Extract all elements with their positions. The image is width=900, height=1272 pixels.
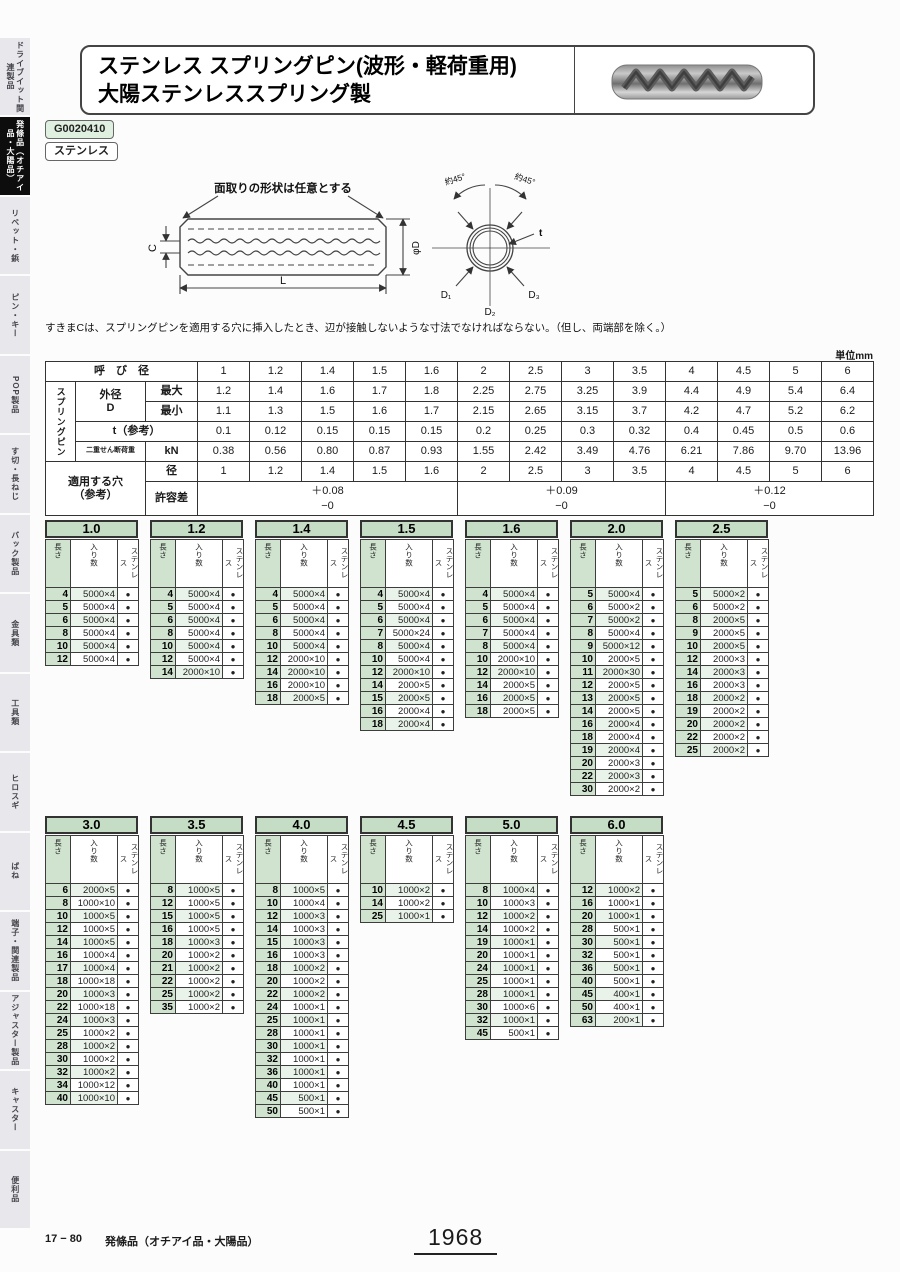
- length-cell: 4: [466, 588, 491, 601]
- stock-dot: ●: [118, 1079, 139, 1092]
- size-table-title: 1.4: [255, 520, 348, 538]
- stock-dot: ●: [328, 588, 349, 601]
- size-tables-row1: 1.0長さ入り数ステンレス45000×4●55000×4●65000×4●850…: [45, 520, 768, 796]
- quantity-cell: 1000×3: [176, 936, 223, 949]
- length-cell: 22: [571, 770, 596, 783]
- length-cell: 28: [466, 988, 491, 1001]
- quantity-cell: 1000×5: [281, 884, 328, 897]
- length-cell: 18: [361, 718, 386, 731]
- stock-dot: ●: [118, 1092, 139, 1105]
- sidebar-item[interactable]: 発條品（オチアイ品・大陽品）: [0, 117, 30, 194]
- size-column-header-label: ステンレス: [538, 543, 560, 582]
- stock-dot: ●: [643, 949, 664, 962]
- sidebar-item-label: アジャスター製品: [10, 994, 20, 1066]
- sidebar-item[interactable]: 端子・関連製品: [0, 912, 30, 989]
- stock-dot: ●: [538, 975, 559, 988]
- size-table-grid: 長さ入り数ステンレス45000×4●55000×4●65000×4●75000×…: [360, 539, 454, 731]
- spec-label-nominal: 呼 び 径: [46, 362, 198, 382]
- size-column-header-label: 長さ: [158, 839, 169, 855]
- spec-value-cell: 4.9: [718, 382, 770, 402]
- quantity-cell: 2000×5: [596, 692, 643, 705]
- quantity-cell: 2000×4: [386, 718, 433, 731]
- quantity-cell: 5000×4: [71, 653, 118, 666]
- size-row: 102000×5●: [571, 653, 664, 666]
- spec-value-cell: 1.1: [198, 402, 250, 422]
- size-column-header-label: ステンレス: [328, 543, 350, 582]
- stock-dot: ●: [643, 975, 664, 988]
- size-row: 102000×5●: [676, 640, 769, 653]
- sidebar-item-label: 金具類: [10, 620, 20, 647]
- length-cell: 36: [571, 962, 596, 975]
- size-column-header: 入り数: [491, 540, 538, 588]
- size-row: 241000×1●: [256, 1001, 349, 1014]
- size-row: 55000×4●: [466, 601, 559, 614]
- size-row: 142000×10●: [256, 666, 349, 679]
- stock-dot: ●: [328, 692, 349, 705]
- size-column-header-label: 長さ: [368, 543, 379, 559]
- stock-dot: ●: [433, 614, 454, 627]
- size-table-title: 2.0: [570, 520, 663, 538]
- size-column-header-label: ステンレス: [433, 543, 455, 582]
- size-row: 162000×4●: [571, 718, 664, 731]
- length-cell: 28: [571, 923, 596, 936]
- stock-dot: ●: [748, 705, 769, 718]
- size-row: 121000×2●: [466, 910, 559, 923]
- length-cell: 10: [151, 640, 176, 653]
- length-cell: 16: [571, 718, 596, 731]
- size-row: 45000×4●: [46, 588, 139, 601]
- length-cell: 20: [256, 975, 281, 988]
- spec-value-cell: 4.5: [718, 462, 770, 482]
- stock-dot: ●: [223, 666, 244, 679]
- size-table-5.0: 5.0長さ入り数ステンレス81000×4●101000×3●121000×2●1…: [465, 816, 558, 1040]
- length-cell: 8: [676, 614, 701, 627]
- page-title-line1: ステンレス スプリングピン(波形・軽荷重用): [98, 53, 517, 81]
- size-row: 161000×5●: [151, 923, 244, 936]
- stock-dot: ●: [538, 949, 559, 962]
- length-cell: 12: [151, 653, 176, 666]
- spec-value-cell: 0.2: [458, 422, 510, 442]
- stock-dot: ●: [643, 757, 664, 770]
- size-table-1.4: 1.4長さ入り数ステンレス45000×4●55000×4●65000×4●850…: [255, 520, 348, 705]
- size-column-header-label: 入り数: [299, 839, 310, 863]
- quantity-cell: 2000×4: [596, 744, 643, 757]
- quantity-cell: 1000×1: [491, 949, 538, 962]
- length-cell: 5: [571, 588, 596, 601]
- size-row: 32500×1●: [571, 949, 664, 962]
- length-cell: 4: [361, 588, 386, 601]
- length-cell: 19: [676, 705, 701, 718]
- size-row: 65000×4●: [46, 614, 139, 627]
- stock-dot: ●: [643, 923, 664, 936]
- size-row: 101000×3●: [466, 897, 559, 910]
- stock-dot: ●: [328, 1105, 349, 1118]
- size-table-title: 1.6: [465, 520, 558, 538]
- size-row: 182000×4●: [571, 731, 664, 744]
- size-column-header: 長さ: [466, 836, 491, 884]
- quantity-cell: 2000×5: [491, 692, 538, 705]
- spec-value-cell: 3.7: [614, 402, 666, 422]
- stock-dot: ●: [433, 640, 454, 653]
- size-row: 141000×5●: [46, 936, 139, 949]
- sidebar-item-label: ヒロスギ: [10, 774, 20, 810]
- spec-value-cell: 2.42: [510, 442, 562, 462]
- footer-page-ref: 17 − 80: [45, 1233, 82, 1245]
- size-row: 81000×4●: [466, 884, 559, 897]
- size-row: 202000×3●: [571, 757, 664, 770]
- sidebar-item-label: POP製品: [10, 376, 20, 414]
- length-cell: 8: [151, 884, 176, 897]
- spec-label-t: t（参考）: [76, 422, 198, 442]
- stock-dot: ●: [223, 923, 244, 936]
- size-row: 55000×4●: [151, 601, 244, 614]
- size-column-header: 長さ: [151, 836, 176, 884]
- spec-row-od-max: スプリングピン 外径 D 最大 1.21.41.61.71.82.252.753…: [46, 382, 874, 402]
- spec-value-cell: 2.65: [510, 402, 562, 422]
- stock-dot: ●: [328, 1027, 349, 1040]
- spec-label-od: 外径 D: [76, 382, 146, 422]
- stock-dot: ●: [433, 627, 454, 640]
- spec-label-group: スプリングピン: [46, 382, 76, 462]
- quantity-cell: 2000×5: [596, 653, 643, 666]
- length-cell: 5: [466, 601, 491, 614]
- length-cell: 12: [466, 666, 491, 679]
- stock-dot: ●: [748, 653, 769, 666]
- size-row: 142000×5●: [466, 679, 559, 692]
- length-cell: 13: [571, 692, 596, 705]
- quantity-cell: 5000×4: [491, 640, 538, 653]
- spec-value-cell: 1.55: [458, 442, 510, 462]
- spec-value-cell: 2: [458, 462, 510, 482]
- stock-dot: ●: [223, 975, 244, 988]
- size-row: 142000×5●: [361, 679, 454, 692]
- stock-dot: ●: [223, 627, 244, 640]
- quantity-cell: 5000×4: [176, 653, 223, 666]
- length-cell: 11: [571, 666, 596, 679]
- size-column-header-label: 入り数: [299, 543, 310, 567]
- quantity-cell: 500×1: [491, 1027, 538, 1040]
- stock-dot: ●: [643, 988, 664, 1001]
- size-row: 102000×10●: [466, 653, 559, 666]
- page-title: ステンレス スプリングピン(波形・軽荷重用) 大陽ステンレススプリング製: [98, 53, 517, 110]
- quantity-cell: 1000×2: [491, 923, 538, 936]
- spec-label-shear: 二重せん断荷重: [76, 442, 146, 462]
- size-table-grid: 長さ入り数ステンレス45000×4●55000×4●65000×4●75000×…: [465, 539, 559, 718]
- size-row: 251000×1●: [256, 1014, 349, 1027]
- length-cell: 16: [256, 949, 281, 962]
- spec-value-cell: 4: [666, 362, 718, 382]
- sidebar-item[interactable]: キャスター: [0, 1071, 30, 1148]
- spec-value-cell: 1.5: [302, 402, 354, 422]
- size-row: 162000×4●: [361, 705, 454, 718]
- length-cell: 30: [46, 1053, 71, 1066]
- spec-value-cell: 2.5: [510, 462, 562, 482]
- quantity-cell: 500×1: [281, 1092, 328, 1105]
- quantity-cell: 1000×1: [491, 936, 538, 949]
- length-cell: 8: [361, 640, 386, 653]
- size-row: 301000×2●: [46, 1053, 139, 1066]
- quantity-cell: 1000×5: [71, 936, 118, 949]
- length-cell: 10: [466, 897, 491, 910]
- sidebar-item[interactable]: ピン・キー: [0, 276, 30, 353]
- stock-dot: ●: [328, 1079, 349, 1092]
- quantity-cell: 1000×2: [176, 975, 223, 988]
- length-cell: 4: [46, 588, 71, 601]
- length-cell: 14: [256, 923, 281, 936]
- quantity-cell: 2000×5: [596, 679, 643, 692]
- quantity-cell: 2000×4: [386, 705, 433, 718]
- sidebar-item-label: ばね: [10, 862, 20, 880]
- stock-dot: ●: [328, 666, 349, 679]
- spec-value-cell: 5: [770, 362, 822, 382]
- sidebar-item[interactable]: 金具類: [0, 594, 30, 671]
- stock-dot: ●: [223, 614, 244, 627]
- dim-d3-label: D₃: [528, 290, 539, 301]
- stock-dot: ●: [433, 897, 454, 910]
- size-table-1.0: 1.0長さ入り数ステンレス45000×4●55000×4●65000×4●850…: [45, 520, 138, 666]
- length-cell: 14: [46, 936, 71, 949]
- quantity-cell: 2000×10: [281, 653, 328, 666]
- stock-dot: ●: [223, 910, 244, 923]
- size-row: 65000×4●: [361, 614, 454, 627]
- quantity-cell: 1000×1: [491, 1014, 538, 1027]
- size-column-header-label: 入り数: [509, 839, 520, 863]
- stock-dot: ●: [643, 744, 664, 757]
- stock-dot: ●: [328, 1092, 349, 1105]
- length-cell: 20: [46, 988, 71, 1001]
- quantity-cell: 1000×2: [71, 1027, 118, 1040]
- size-row: 101000×4●: [256, 897, 349, 910]
- size-column-header-label: 長さ: [578, 839, 589, 855]
- quantity-cell: 2000×10: [491, 653, 538, 666]
- spec-row-t: t（参考） 0.10.120.150.150.150.20.250.30.320…: [46, 422, 874, 442]
- quantity-cell: 5000×4: [176, 614, 223, 627]
- size-column-header: 長さ: [571, 836, 596, 884]
- size-column-header: 長さ: [46, 540, 71, 588]
- sidebar-item[interactable]: 便利品: [0, 1151, 30, 1228]
- size-row: 45000×4●: [466, 588, 559, 601]
- length-cell: 45: [256, 1092, 281, 1105]
- size-row: 281000×2●: [46, 1040, 139, 1053]
- size-table-title: 4.0: [255, 816, 348, 834]
- stock-dot: ●: [223, 1001, 244, 1014]
- size-column-header-label: 長さ: [473, 543, 484, 559]
- size-row: 221000×18●: [46, 1001, 139, 1014]
- spec-row-shear: 二重せん断荷重 kN 0.380.560.800.870.931.552.423…: [46, 442, 874, 462]
- stock-dot: ●: [748, 588, 769, 601]
- quantity-cell: 2000×5: [701, 640, 748, 653]
- stock-dot: ●: [433, 692, 454, 705]
- catalog-page: ドライブイット関連製品発條品（オチアイ品・大陽品）リベット・鋲ピン・キーPOP製…: [0, 0, 900, 1272]
- sidebar-item-label: ピン・キー: [10, 293, 20, 338]
- stock-dot: ●: [538, 588, 559, 601]
- stock-dot: ●: [643, 936, 664, 949]
- spec-row-od-min: 最小 1.11.31.51.61.72.152.653.153.74.24.75…: [46, 402, 874, 422]
- spec-value-cell: 3.9: [614, 382, 666, 402]
- size-row: 121000×2●: [571, 884, 664, 897]
- size-row: 45500×1●: [466, 1027, 559, 1040]
- stock-dot: ●: [118, 962, 139, 975]
- quantity-cell: 500×1: [596, 962, 643, 975]
- size-row: 221000×2●: [151, 975, 244, 988]
- length-cell: 10: [46, 910, 71, 923]
- spec-value-cell: 5.4: [770, 382, 822, 402]
- quantity-cell: 1000×1: [281, 1079, 328, 1092]
- stock-dot: ●: [538, 614, 559, 627]
- size-row: 92000×5●: [676, 627, 769, 640]
- spec-value-cell: 1.4: [302, 362, 354, 382]
- quantity-cell: 2000×2: [596, 783, 643, 796]
- sidebar-item[interactable]: POP製品: [0, 356, 30, 433]
- stock-dot: ●: [223, 988, 244, 1001]
- size-row: 321000×1●: [256, 1053, 349, 1066]
- spec-value-cell: 5.2: [770, 402, 822, 422]
- size-table-1.6: 1.6長さ入り数ステンレス45000×4●55000×4●65000×4●750…: [465, 520, 558, 718]
- quantity-cell: 1000×1: [491, 988, 538, 1001]
- spec-value-cell: 0.87: [354, 442, 406, 462]
- quantity-cell: 500×1: [281, 1105, 328, 1118]
- stock-dot: ●: [118, 897, 139, 910]
- length-cell: 12: [571, 679, 596, 692]
- size-row: 181000×3●: [151, 936, 244, 949]
- stock-dot: ●: [118, 1014, 139, 1027]
- length-cell: 25: [676, 744, 701, 757]
- size-row: 182000×2●: [676, 692, 769, 705]
- stock-dot: ●: [643, 653, 664, 666]
- size-row: 85000×4●: [571, 627, 664, 640]
- quantity-cell: 1000×4: [281, 897, 328, 910]
- spec-value-cell: 0.1: [198, 422, 250, 442]
- quantity-cell: 5000×4: [71, 640, 118, 653]
- spec-value-cell: 1.6: [354, 402, 406, 422]
- size-column-header-label: ステンレス: [118, 543, 140, 582]
- stock-dot: ●: [643, 1014, 664, 1027]
- length-cell: 8: [256, 884, 281, 897]
- stock-dot: ●: [328, 988, 349, 1001]
- spec-value-cell: 0.12: [250, 422, 302, 442]
- quantity-cell: 2000×2: [701, 692, 748, 705]
- size-row: 125000×4●: [46, 653, 139, 666]
- size-column-header: 入り数: [281, 836, 328, 884]
- quantity-cell: 2000×10: [176, 666, 223, 679]
- size-row: 222000×2●: [676, 731, 769, 744]
- quantity-cell: 5000×4: [71, 601, 118, 614]
- spec-value-cell: 1: [198, 462, 250, 482]
- sidebar-item[interactable]: アジャスター製品: [0, 992, 30, 1069]
- size-row: 141000×3●: [256, 923, 349, 936]
- stock-dot: ●: [433, 653, 454, 666]
- stock-dot: ●: [433, 884, 454, 897]
- size-row: 251000×1●: [361, 910, 454, 923]
- size-column-header: 長さ: [676, 540, 701, 588]
- sidebar-item[interactable]: ヒロスギ: [0, 753, 30, 830]
- size-column-header: ステンレス: [433, 540, 454, 588]
- spec-value-cell: 0.4: [666, 422, 718, 442]
- size-row: 55000×4●: [256, 601, 349, 614]
- quantity-cell: 1000×5: [176, 897, 223, 910]
- sidebar-item[interactable]: ドライブイット関連製品: [0, 38, 30, 115]
- size-row: 95000×12●: [571, 640, 664, 653]
- size-table-grid: 長さ入り数ステンレス45000×4●55000×4●65000×4●85000×…: [150, 539, 244, 679]
- length-cell: 14: [466, 923, 491, 936]
- stock-dot: ●: [748, 640, 769, 653]
- size-table-1.2: 1.2長さ入り数ステンレス45000×4●55000×4●65000×4●850…: [150, 520, 243, 679]
- length-cell: 9: [571, 640, 596, 653]
- length-cell: 16: [361, 705, 386, 718]
- stock-dot: ●: [643, 601, 664, 614]
- quantity-cell: 1000×2: [596, 884, 643, 897]
- dim-d2-label: D₂: [484, 307, 495, 317]
- quantity-cell: 1000×2: [386, 897, 433, 910]
- size-row: 201000×3●: [46, 988, 139, 1001]
- quantity-cell: 5000×2: [701, 588, 748, 601]
- spec-value-cell: 3.15: [562, 402, 614, 422]
- stock-dot: ●: [118, 936, 139, 949]
- spec-value-cell: 0.15: [354, 422, 406, 442]
- quantity-cell: 1000×3: [281, 910, 328, 923]
- quantity-cell: 1000×1: [281, 1014, 328, 1027]
- spec-value-cell: 0.15: [406, 422, 458, 442]
- size-table-title: 1.5: [360, 520, 453, 538]
- size-column-header: 入り数: [701, 540, 748, 588]
- size-row: 45500×1●: [256, 1092, 349, 1105]
- length-cell: 12: [151, 897, 176, 910]
- length-cell: 15: [151, 910, 176, 923]
- sidebar-item[interactable]: リベット・鋲: [0, 197, 30, 274]
- size-row: 85000×4●: [256, 627, 349, 640]
- unit-label: 単位mm: [835, 347, 873, 362]
- sidebar-item[interactable]: 工具類: [0, 674, 30, 751]
- size-row: 65000×4●: [151, 614, 244, 627]
- size-row: 252000×2●: [676, 744, 769, 757]
- sidebar-item[interactable]: ばね: [0, 833, 30, 910]
- size-table-grid: 長さ入り数ステンレス121000×2●161000×1●201000×1●285…: [570, 835, 664, 1027]
- length-cell: 5: [361, 601, 386, 614]
- size-column-header: ステンレス: [118, 540, 139, 588]
- quantity-cell: 1000×2: [281, 988, 328, 1001]
- quantity-cell: 1000×2: [281, 975, 328, 988]
- size-row: 401000×10●: [46, 1092, 139, 1105]
- stock-dot: ●: [748, 627, 769, 640]
- length-cell: 35: [151, 1001, 176, 1014]
- length-cell: 32: [256, 1053, 281, 1066]
- sidebar-item[interactable]: バック製品: [0, 515, 30, 592]
- quantity-cell: 400×1: [596, 988, 643, 1001]
- spec-table: 呼 び 径 11.21.41.51.622.533.544.556 スプリングピ…: [45, 361, 874, 516]
- spec-value-cell: 4.76: [614, 442, 666, 462]
- stock-dot: ●: [118, 601, 139, 614]
- quantity-cell: 5000×4: [491, 588, 538, 601]
- length-cell: 6: [46, 614, 71, 627]
- quantity-cell: 2000×3: [701, 679, 748, 692]
- stock-dot: ●: [118, 614, 139, 627]
- quantity-cell: 500×1: [596, 923, 643, 936]
- quantity-cell: 5000×4: [386, 614, 433, 627]
- size-row: 75000×4●: [466, 627, 559, 640]
- stock-dot: ●: [643, 627, 664, 640]
- length-cell: 16: [256, 679, 281, 692]
- quantity-cell: 1000×4: [71, 962, 118, 975]
- stock-dot: ●: [643, 1001, 664, 1014]
- stock-dot: ●: [748, 614, 769, 627]
- size-table-grid: 長さ入り数ステンレス45000×4●55000×4●65000×4●85000×…: [45, 539, 139, 666]
- size-row: 65000×2●: [571, 601, 664, 614]
- size-row: 142000×3●: [676, 666, 769, 679]
- size-row: 351000×2●: [151, 1001, 244, 1014]
- sidebar-item[interactable]: す切・長ねじ: [0, 435, 30, 512]
- length-cell: 10: [46, 640, 71, 653]
- stock-dot: ●: [223, 588, 244, 601]
